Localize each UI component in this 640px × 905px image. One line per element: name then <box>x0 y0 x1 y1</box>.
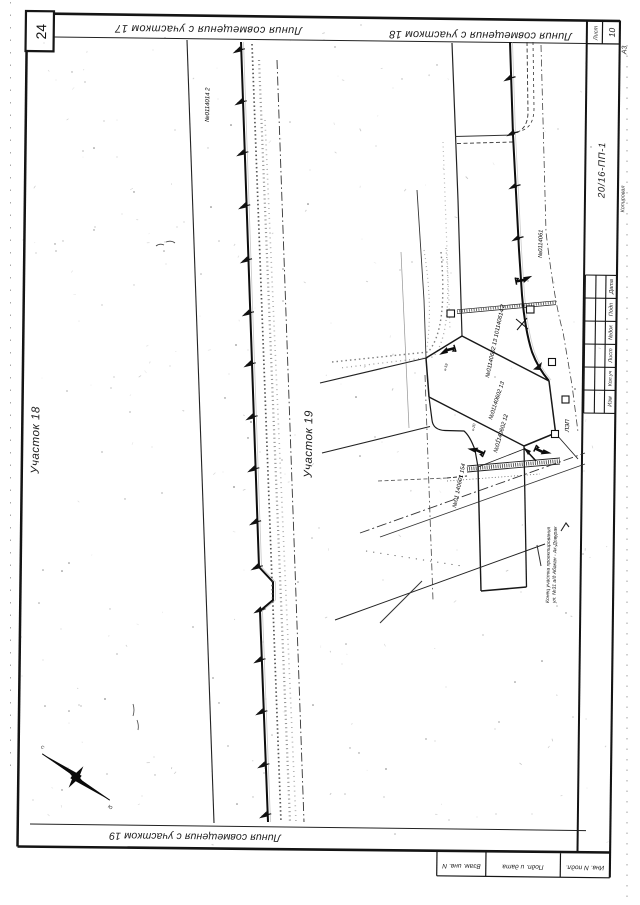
svg-text:№док: №док <box>608 325 614 340</box>
svg-text:Дата: Дата <box>609 279 615 295</box>
svg-text:Подп. и дата: Подп. и дата <box>502 863 544 872</box>
svg-text:Лист: Лист <box>593 25 599 41</box>
svg-text:Кол.уч: Кол.уч <box>608 370 614 386</box>
svg-text:Изм: Изм <box>607 396 613 407</box>
svg-text:24: 24 <box>33 24 49 40</box>
svg-text:Участок 19: Участок 19 <box>303 410 316 479</box>
svg-text:А3: А3 <box>621 46 628 56</box>
svg-text:Лист: Лист <box>608 348 614 364</box>
svg-text:Линия совмещения с участком 17: Линия совмещения с участком 17 <box>114 22 303 36</box>
svg-text:№0114014 2: №0114014 2 <box>204 87 211 122</box>
svg-text:Линия совмещения с участком 18: Линия совмещения с участком 18 <box>388 28 573 42</box>
svg-text:20/16-ПП-1: 20/16-ПП-1 <box>596 142 608 199</box>
svg-text:ЛЭП: ЛЭП <box>565 419 571 433</box>
svg-text:Подп: Подп <box>609 303 615 316</box>
svg-text:Участок 18: Участок 18 <box>30 406 43 475</box>
svg-text:Линия совмещения с участком 19: Линия совмещения с участком 19 <box>109 830 282 844</box>
svg-text:Взам. инв. N: Взам. инв. N <box>442 862 481 869</box>
svg-text:Инв. N подл.: Инв. N подл. <box>566 863 605 871</box>
svg-text:Копировал: Копировал <box>620 186 626 213</box>
svg-text:10: 10 <box>607 28 617 38</box>
svg-text:№0114061: №0114061 <box>538 230 544 259</box>
